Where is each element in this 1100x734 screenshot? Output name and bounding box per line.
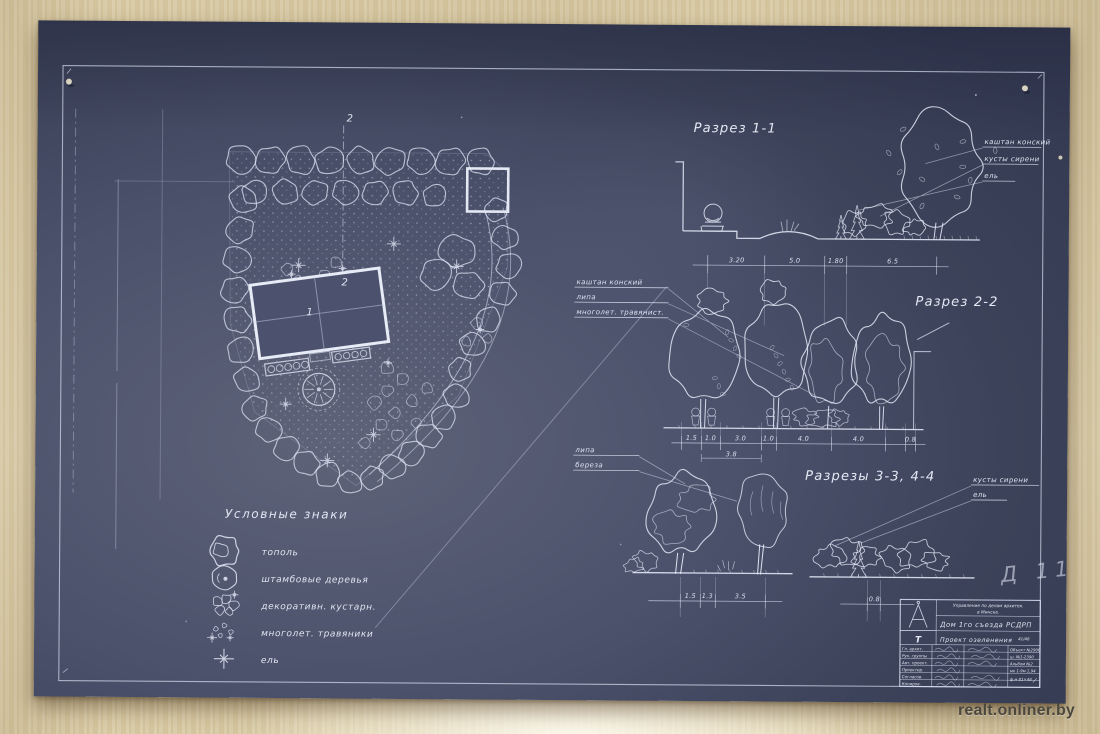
dim-value: 4.0 — [798, 435, 809, 443]
legend-symbol — [210, 536, 239, 566]
stamp-ref: ш. №1-2390 — [1010, 654, 1034, 659]
callout-perennials: многолет. травянист. — [576, 308, 664, 317]
tree-crown — [806, 410, 841, 428]
dim-value: 1.3 — [702, 592, 713, 600]
leaf-mark — [900, 126, 907, 132]
signature-squiggle — [937, 668, 960, 673]
stamp-role: Проектир. — [902, 667, 924, 672]
stamp-type-mark: Т — [915, 636, 922, 646]
dim-value: 1.80 — [828, 257, 844, 265]
tree-crown — [623, 557, 644, 572]
signature-squiggle — [935, 661, 958, 666]
signature-squiggle — [937, 654, 960, 659]
leaf-mark — [684, 323, 689, 326]
planter-pot — [782, 417, 790, 426]
leaf-mark — [968, 177, 972, 183]
legend-symbol — [225, 607, 233, 615]
pencil-annotation: Д 11 — [999, 556, 1071, 587]
signatures — [935, 647, 1000, 688]
callout-lilac: кусты сирени — [973, 476, 1028, 484]
small-plants — [718, 560, 735, 571]
leaf-mark — [993, 147, 997, 153]
callout-spruce: ель — [984, 172, 998, 180]
plan-building-marker-1: 1 — [306, 307, 312, 318]
section-trees — [623, 105, 997, 578]
signature-squiggle — [968, 661, 997, 666]
leaf-mark — [773, 353, 779, 359]
grass-tuft — [781, 220, 799, 232]
birch-branches — [750, 485, 783, 519]
leaf-mark — [954, 194, 961, 199]
legend-label-standard-trees: штамбовые деревья — [261, 575, 368, 586]
blueprint-sheet: 2 2 1 Разрез 1-1 каштан конский кусты си… — [34, 20, 1071, 703]
callout-chestnut: каштан конский — [985, 138, 1051, 146]
pedestal-ball — [701, 204, 724, 231]
legend-label-poplar: тополь — [262, 548, 299, 558]
legend-label-spruce: ель — [261, 656, 279, 666]
stamp-ref: Объект №2906 — [1010, 647, 1041, 652]
stamp-role: Копиров. — [902, 681, 921, 686]
dim-value: 4.0 — [853, 435, 864, 443]
dim-value: 1.0 — [705, 434, 716, 442]
pot-bush — [782, 409, 790, 417]
leaf-mark — [728, 338, 734, 343]
leaf-mark — [732, 345, 737, 351]
pot-bush — [692, 408, 700, 416]
tree-trunk — [934, 223, 943, 240]
stamp-sheet-number: 41/48 — [1018, 636, 1030, 641]
dim-value: 1.5 — [686, 434, 697, 442]
leaf-mark — [960, 139, 967, 144]
legend-symbol — [230, 591, 238, 599]
section-1-1-title: Разрез 1-1 — [694, 121, 777, 137]
leaf-mark — [790, 385, 794, 391]
legend-symbol — [214, 649, 234, 669]
leaf-mark — [782, 369, 787, 375]
tree-crown — [801, 317, 858, 403]
leaf-mark — [785, 378, 791, 382]
building-edge — [675, 162, 683, 231]
leaf-mark — [886, 150, 892, 157]
plan-building-marker-2: 2 — [342, 278, 348, 289]
callout-birch: береза — [575, 461, 603, 469]
sheet-frame — [59, 66, 1044, 688]
plan-section-marker-top: 2 — [347, 114, 353, 125]
dim-value: 1.0 — [763, 434, 774, 442]
stamp-ref: Альбом №2 — [1009, 661, 1033, 666]
stamp-org-line2: в Минске. — [977, 609, 999, 615]
leaf-mark — [736, 353, 742, 359]
tree-crown — [901, 107, 984, 228]
tree-crown — [813, 544, 847, 568]
push-pins — [62, 78, 1063, 628]
tree-crown — [879, 545, 911, 573]
tree-crown — [851, 312, 912, 403]
tree-crown — [737, 474, 787, 548]
leaf-mark — [919, 176, 926, 182]
callout-lines — [574, 287, 817, 396]
ground-line — [683, 231, 980, 240]
dim-subtotal: 3.8 — [726, 450, 737, 458]
tree-crown — [669, 308, 741, 398]
callout-lilac: кусты сирени — [984, 155, 1039, 163]
tree-crown — [856, 203, 893, 228]
dim-value: 0.8 — [869, 595, 880, 603]
tree-crown — [760, 280, 786, 305]
legend-symbols — [207, 536, 240, 669]
legend-symbol — [213, 543, 228, 557]
signature-squiggle — [971, 654, 1000, 659]
legend-label-perennials: многолет. травяники — [261, 629, 373, 640]
planter-pot — [692, 416, 700, 425]
site-watermark: realt.onliner.by — [958, 702, 1098, 720]
leaf-mark — [769, 345, 775, 351]
leaf-mark — [777, 361, 783, 366]
legend-symbol — [227, 634, 234, 641]
stamp-role: Рук. группы — [902, 653, 927, 658]
signature-squiggle — [935, 647, 958, 652]
dim-value: 3.20 — [729, 256, 745, 264]
callout-linden: липа — [575, 293, 596, 301]
dim-value: 6.5 — [887, 257, 898, 265]
stamp-ref: мк 1-9м 1,94 — [1010, 668, 1036, 673]
dim-value: 3.0 — [735, 434, 746, 442]
legend-symbol — [213, 597, 222, 606]
leaf-mark — [934, 143, 940, 150]
dim-value: 5.0 — [789, 257, 800, 265]
push-pin-left — [66, 78, 72, 84]
tree-crown — [897, 539, 936, 567]
tree-crown — [697, 288, 729, 315]
legend-symbol — [217, 574, 219, 583]
legend-label-shrubs: декоративн. кустарн. — [260, 602, 376, 613]
dim-value: 3.5 — [735, 592, 746, 600]
ground-line-right — [810, 577, 975, 578]
tree-crown — [652, 510, 691, 545]
signature-squiggle — [968, 647, 997, 652]
stamp-role: Согласов. — [902, 674, 923, 679]
section-2-2-title: Разрез 2-2 — [915, 295, 998, 311]
sections-3-4-title: Разрезы 3-3, 4-4 — [805, 469, 935, 485]
stamp-project: Дом 1го съезда РСДРП — [939, 621, 1032, 630]
signature-squiggle — [971, 675, 1000, 680]
legend-symbol — [207, 633, 217, 643]
push-pin-right — [1022, 85, 1028, 91]
push-pin-small — [1058, 155, 1062, 159]
legend-symbol — [215, 605, 225, 615]
wall-edge — [914, 323, 950, 430]
callout-linden: липа — [574, 446, 595, 454]
tree-crown — [865, 333, 906, 404]
stamp-subject: Проект озеленения — [940, 637, 1012, 645]
blueprint-drawing: 2 2 1 Разрез 1-1 каштан конский кусты си… — [34, 20, 1071, 703]
stamp-ref: ф.м 81×48 — [1010, 677, 1032, 682]
stamp-role: Авт. проект. — [901, 660, 928, 665]
dim-value: 1.5 — [685, 592, 696, 600]
leaf-mark — [919, 203, 925, 210]
legend-symbol — [223, 577, 227, 581]
ground-line — [664, 428, 924, 430]
ground-line-left — [633, 573, 793, 574]
planter-pot — [708, 416, 716, 425]
tree-crown — [632, 550, 657, 572]
leaf-mark — [717, 384, 720, 389]
callout-spruce: ель — [973, 491, 987, 499]
leaf-mark — [960, 165, 966, 168]
pot-bush — [708, 408, 716, 416]
tree-crown — [744, 303, 808, 396]
tree-crown — [808, 338, 843, 403]
stamp-role: Гл. архит. — [902, 646, 923, 651]
legend-symbol — [229, 601, 240, 611]
photo-of-blueprint: { "watermark": "realt.onliner.by", "penc… — [0, 0, 1100, 734]
callout-chestnut: каштан конский — [577, 278, 643, 286]
legend-symbol — [218, 634, 222, 638]
signature-squiggle — [935, 675, 958, 680]
dim-value: 0.8 — [905, 435, 916, 443]
legend-symbol — [222, 623, 227, 628]
legend-symbol — [214, 626, 219, 631]
tree-crown — [921, 552, 950, 571]
leaf-mark — [712, 376, 718, 380]
legend-title: Условные знаки — [225, 507, 349, 522]
leaf-mark — [897, 169, 904, 176]
org-logo — [909, 601, 927, 627]
grass-ticks — [678, 234, 977, 578]
dimension-lines — [692, 255, 948, 327]
legend-symbol — [229, 630, 234, 635]
stamp-org-line1: Управление по делам архитек. — [953, 603, 1024, 609]
